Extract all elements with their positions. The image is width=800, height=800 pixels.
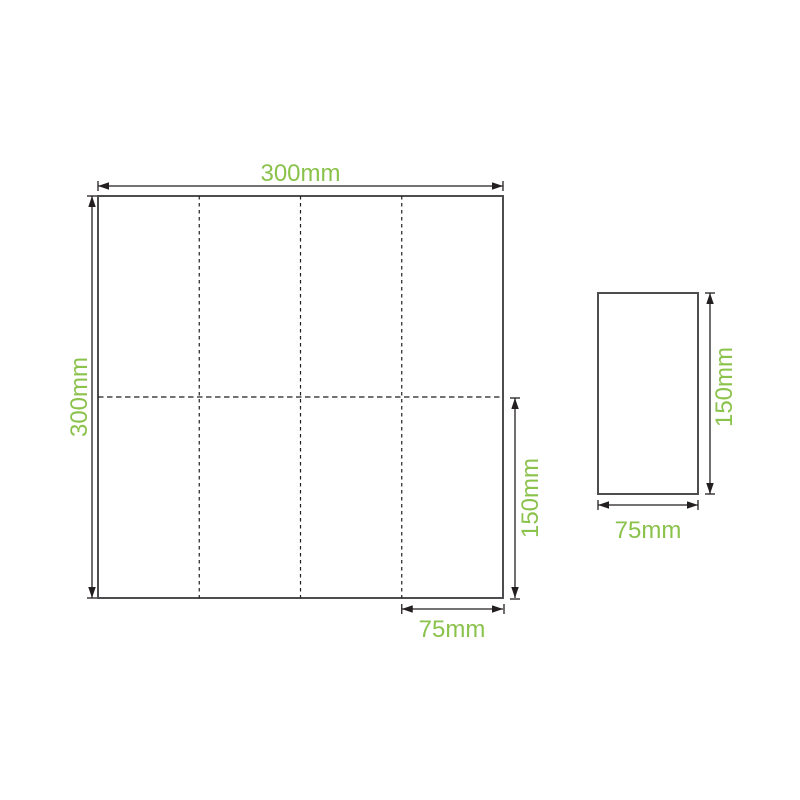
- dim-unfolded-height: 300mm: [66, 196, 97, 598]
- dim-folded-width: 75mm: [598, 500, 698, 544]
- folded-napkin-outline: [598, 293, 698, 494]
- dim-quarter-width: 75mm: [402, 604, 504, 643]
- dim-unfolded-width: 300mm: [98, 160, 503, 191]
- dim-half-height: 150mm: [510, 398, 544, 599]
- dim-label-unfolded-height: 300mm: [66, 357, 93, 437]
- dim-label-folded-width: 75mm: [615, 517, 682, 544]
- dim-label-folded-height: 150mm: [711, 347, 738, 427]
- dim-label-unfolded-width: 300mm: [260, 160, 340, 187]
- dim-label-half-height: 150mm: [517, 458, 544, 538]
- diagram-svg: 300mm 300mm 150mm 75mm: [0, 0, 800, 800]
- dim-label-quarter-width: 75mm: [419, 616, 486, 643]
- napkin-dimension-diagram: 300mm 300mm 150mm 75mm: [0, 0, 800, 800]
- dim-folded-height: 150mm: [705, 293, 738, 494]
